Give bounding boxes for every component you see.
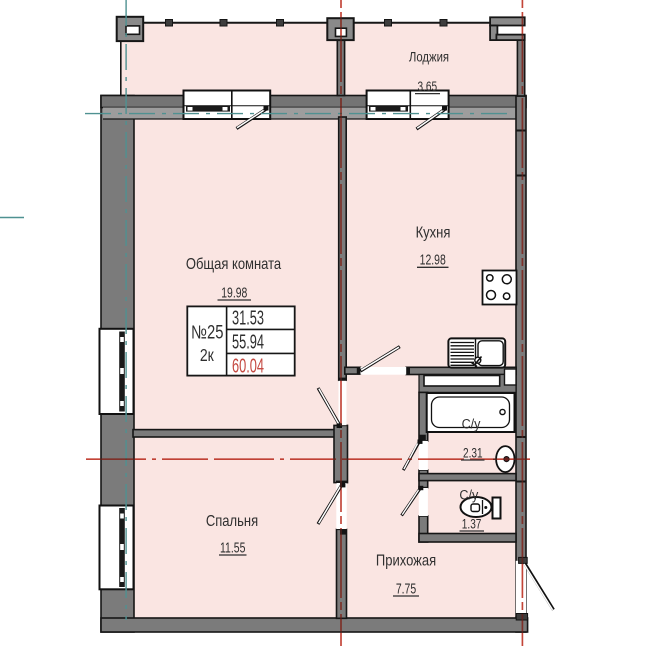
svg-text:60.04: 60.04 (232, 355, 264, 378)
svg-text:2.31: 2.31 (463, 445, 483, 461)
svg-text:Лоджия: Лоджия (409, 50, 449, 65)
svg-text:№25: №25 (191, 322, 223, 343)
svg-text:Прихожая: Прихожая (376, 553, 436, 570)
svg-text:Кухня: Кухня (416, 225, 451, 242)
svg-text:С/у: С/у (462, 416, 481, 432)
svg-text:Общая комната: Общая комната (186, 256, 281, 273)
svg-text:31.53: 31.53 (232, 307, 264, 330)
svg-text:3.65: 3.65 (417, 78, 437, 94)
svg-text:2к: 2к (200, 345, 215, 365)
svg-text:Спальня: Спальня (206, 513, 258, 530)
svg-text:11.55: 11.55 (220, 540, 245, 556)
svg-text:7.75: 7.75 (396, 581, 416, 597)
svg-text:19.98: 19.98 (221, 285, 247, 301)
svg-text:55.94: 55.94 (232, 331, 264, 354)
svg-text:С/у: С/у (459, 487, 478, 503)
svg-text:12.98: 12.98 (420, 252, 446, 268)
svg-text:1.37: 1.37 (462, 516, 482, 532)
